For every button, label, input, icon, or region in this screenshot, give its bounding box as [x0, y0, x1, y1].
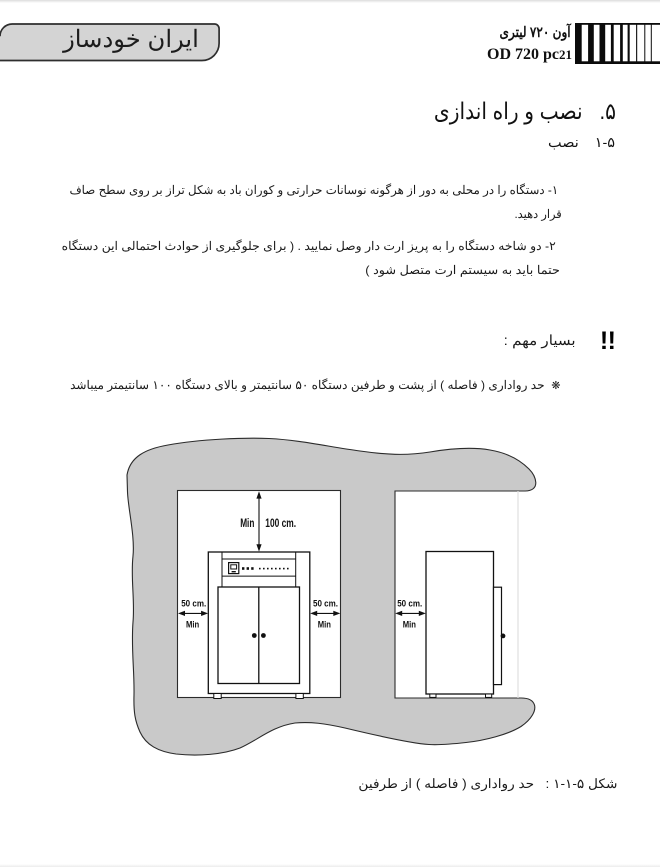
svg-text:50 cm.: 50 cm. [313, 599, 338, 609]
svg-text:50 cm.: 50 cm. [397, 599, 422, 609]
svg-text:100 cm.: 100 cm. [265, 518, 296, 530]
svg-text:Min: Min [318, 620, 332, 630]
svg-text:Min: Min [403, 620, 417, 630]
svg-text:Min: Min [186, 620, 200, 630]
svg-text:Min: Min [240, 518, 254, 530]
svg-text:50 cm.: 50 cm. [181, 599, 206, 609]
